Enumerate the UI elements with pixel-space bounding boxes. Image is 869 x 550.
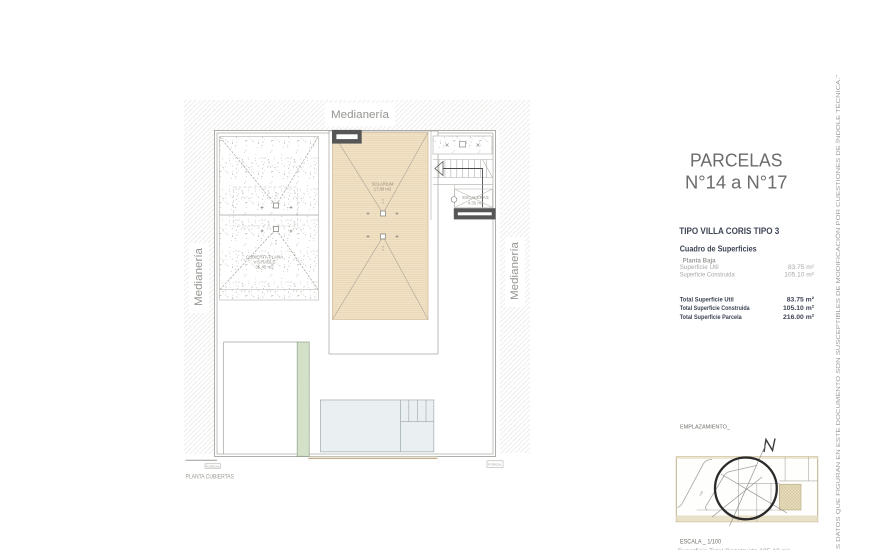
svg-text:Superficie Construida: Superficie Construida [680,271,735,278]
svg-text:105.10 m²: 105.10 m² [784,271,814,278]
svg-text:ESCALA _ 1/100: ESCALA _ 1/100 [680,539,721,546]
svg-text:Total Superficie Construida: Total Superficie Construida [680,305,750,312]
svg-text:35.45 m2: 35.45 m2 [255,265,274,270]
svg-text:17.80 m2: 17.80 m2 [374,187,392,192]
svg-text:Medianería: Medianería [509,241,521,300]
svg-text:P.ORICAL: P.ORICAL [488,463,502,467]
svg-text:83.75 m²: 83.75 m² [787,297,815,304]
svg-text:P.ORICAL: P.ORICAL [206,464,220,468]
svg-text:Superficie Util: Superficie Util [680,264,720,271]
svg-text:105.10 m²: 105.10 m² [783,305,815,312]
svg-text:PLANTA CUBIERTAS: PLANTA CUBIERTAS [186,474,235,481]
svg-text:TIPO VILLA CORIS TIPO 3: TIPO VILLA CORIS TIPO 3 [679,226,779,237]
svg-text:PARCELAS: PARCELAS [690,151,783,171]
svg-text:N°14 a N°17: N°14 a N°17 [685,173,788,193]
svg-text:83.75 m²: 83.75 m² [788,264,815,271]
svg-text:216.00 m²: 216.00 m² [783,314,815,321]
svg-text:Total Superficie Util: Total Superficie Util [680,297,734,304]
svg-text:Total Superficie Parcela: Total Superficie Parcela [680,314,742,321]
svg-text:EMPLAZAMIENTO_: EMPLAZAMIENTO_ [680,425,731,431]
svg-text:4.35 m2: 4.35 m2 [468,201,484,206]
svg-text:Medianería: Medianería [331,109,390,121]
svg-text:S DATOS QUE FIGURAN EN ESTE DO: S DATOS QUE FIGURAN EN ESTE DOCUMENTO SO… [835,75,842,549]
svg-text:Cuadro de Superficies: Cuadro de Superficies [680,244,757,254]
svg-text:Medianería: Medianería [193,247,205,306]
svg-text:ESCALERAS: ESCALERAS [462,195,488,200]
